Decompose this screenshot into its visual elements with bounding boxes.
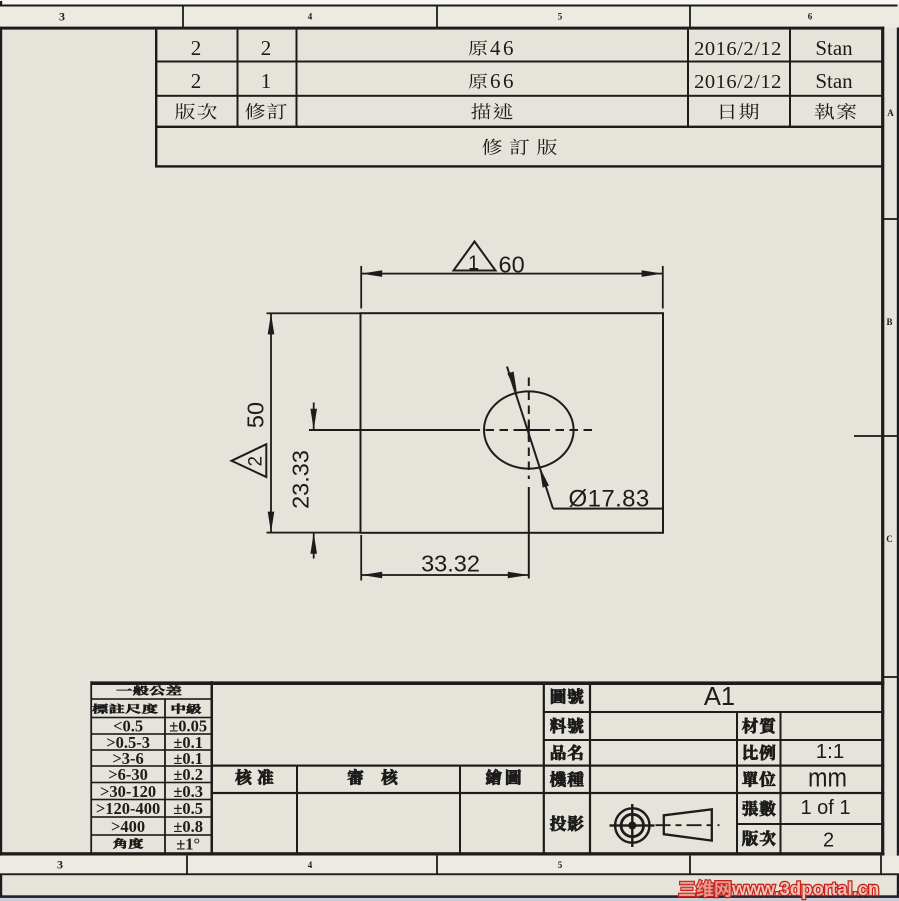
svg-text:±0.8: ±0.8 [173, 817, 203, 836]
svg-text:46: 46 [490, 36, 516, 60]
svg-text:±0.5: ±0.5 [173, 799, 203, 818]
svg-text:A1: A1 [704, 683, 735, 711]
svg-text:1: 1 [468, 252, 479, 274]
svg-text:>400: >400 [111, 817, 145, 836]
svg-text:6: 6 [808, 12, 813, 22]
svg-text:2016/2/12: 2016/2/12 [694, 71, 782, 93]
svg-text:66: 66 [490, 69, 516, 93]
svg-text:>30-120: >30-120 [100, 782, 156, 801]
svg-text:1 of 1: 1 of 1 [800, 797, 850, 819]
svg-text:Stan: Stan [815, 69, 853, 93]
svg-text:2: 2 [261, 36, 272, 60]
svg-text:1: 1 [261, 69, 272, 93]
svg-text:C: C [886, 534, 893, 544]
svg-text:1:1: 1:1 [816, 740, 845, 763]
svg-text:±0.3: ±0.3 [173, 782, 203, 801]
svg-text:3: 3 [59, 10, 65, 24]
svg-text:33.32: 33.32 [421, 551, 480, 577]
svg-text:Stan: Stan [815, 36, 853, 60]
svg-text:50: 50 [242, 402, 268, 428]
svg-text:>120-400: >120-400 [96, 799, 160, 818]
svg-text:A: A [887, 108, 894, 118]
svg-text:Ø17.83: Ø17.83 [569, 486, 650, 513]
svg-text:23.33: 23.33 [287, 450, 313, 509]
svg-text:2016/2/12: 2016/2/12 [694, 38, 782, 60]
svg-text:3: 3 [57, 858, 63, 872]
svg-text:2: 2 [191, 69, 202, 93]
svg-text:5: 5 [558, 12, 563, 22]
svg-text:2: 2 [191, 36, 202, 60]
svg-text:±1°: ±1° [176, 834, 200, 853]
svg-text:B: B [886, 317, 892, 327]
svg-text:2: 2 [246, 456, 267, 467]
svg-text:www.3dportal.cn: www.3dportal.cn [731, 878, 879, 899]
svg-text:4: 4 [308, 860, 313, 870]
svg-text:2: 2 [823, 829, 834, 851]
svg-text:mm: mm [808, 763, 847, 793]
svg-text:4: 4 [308, 12, 313, 22]
svg-text:60: 60 [499, 251, 525, 277]
svg-text:5: 5 [558, 860, 563, 870]
